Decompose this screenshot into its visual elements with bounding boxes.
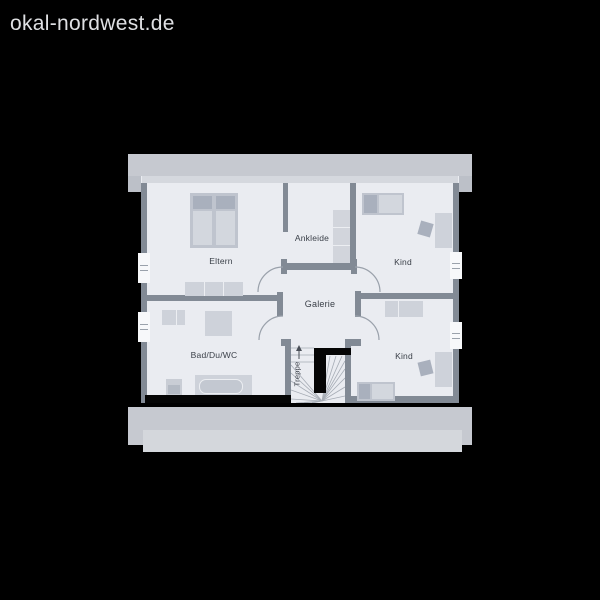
wall-cap-ankleide-br	[351, 259, 357, 274]
bed-pillow	[364, 195, 377, 213]
ankleide-closet	[333, 210, 350, 263]
eltern-double-bed	[190, 193, 238, 248]
wall-cap-ankleide-bl	[281, 259, 287, 274]
eave-band-bottom-light	[143, 430, 462, 452]
kind-top-bed	[362, 193, 404, 215]
room-label-treppe: Treppe	[293, 362, 302, 387]
window-bad-west	[138, 312, 150, 342]
bed-mattress	[216, 211, 235, 245]
bed-pillow	[216, 196, 235, 209]
kind-bottom-wardrobe	[385, 301, 423, 317]
bed-mattress	[193, 211, 212, 245]
window-kind-top-east	[450, 252, 462, 279]
bed-mattress	[379, 195, 402, 213]
screenshot-canvas: okal-nordwest.de	[0, 0, 600, 600]
eltern-wardrobe	[185, 282, 243, 296]
room-label-bad: Bad/Du/WC	[191, 350, 238, 360]
room-label-eltern: Eltern	[209, 256, 232, 266]
stair-core-horizontal	[314, 348, 351, 355]
window-eltern-west	[138, 253, 150, 283]
kind-bottom-desk	[435, 352, 452, 387]
eave-band-top	[128, 154, 472, 176]
kind-bottom-bed	[357, 382, 395, 401]
south-wall-black-strip	[145, 395, 291, 403]
west-wall	[141, 183, 147, 403]
wall-ankleide-bottom	[281, 263, 357, 270]
wall-ankleide-right	[350, 183, 356, 263]
window-kind-bottom-east	[450, 322, 462, 349]
wall-kind-divider	[361, 293, 453, 299]
room-label-kind-bottom: Kind	[395, 351, 413, 361]
bad-shower	[205, 311, 232, 336]
room-label-galerie: Galerie	[305, 299, 335, 309]
bad-wc	[166, 379, 182, 396]
kind-top-desk	[435, 213, 452, 248]
bed-mattress	[372, 384, 393, 399]
east-wall	[453, 183, 459, 403]
room-label-ankleide: Ankleide	[295, 233, 329, 243]
bad-sink	[162, 310, 185, 325]
room-label-kind-top: Kind	[394, 257, 412, 267]
floor-plan: Eltern Ankleide Kind Galerie Bad/Du/WC K…	[0, 0, 600, 600]
wall-cap-galerie-right	[355, 291, 361, 317]
wall-stairwell-left	[285, 339, 291, 403]
wall-cap-galerie-left	[277, 292, 283, 316]
bed-pillow	[193, 196, 212, 209]
north-wall	[142, 176, 458, 183]
bed-pillow	[359, 384, 370, 399]
wall-ankleide-left-stub	[283, 183, 288, 232]
